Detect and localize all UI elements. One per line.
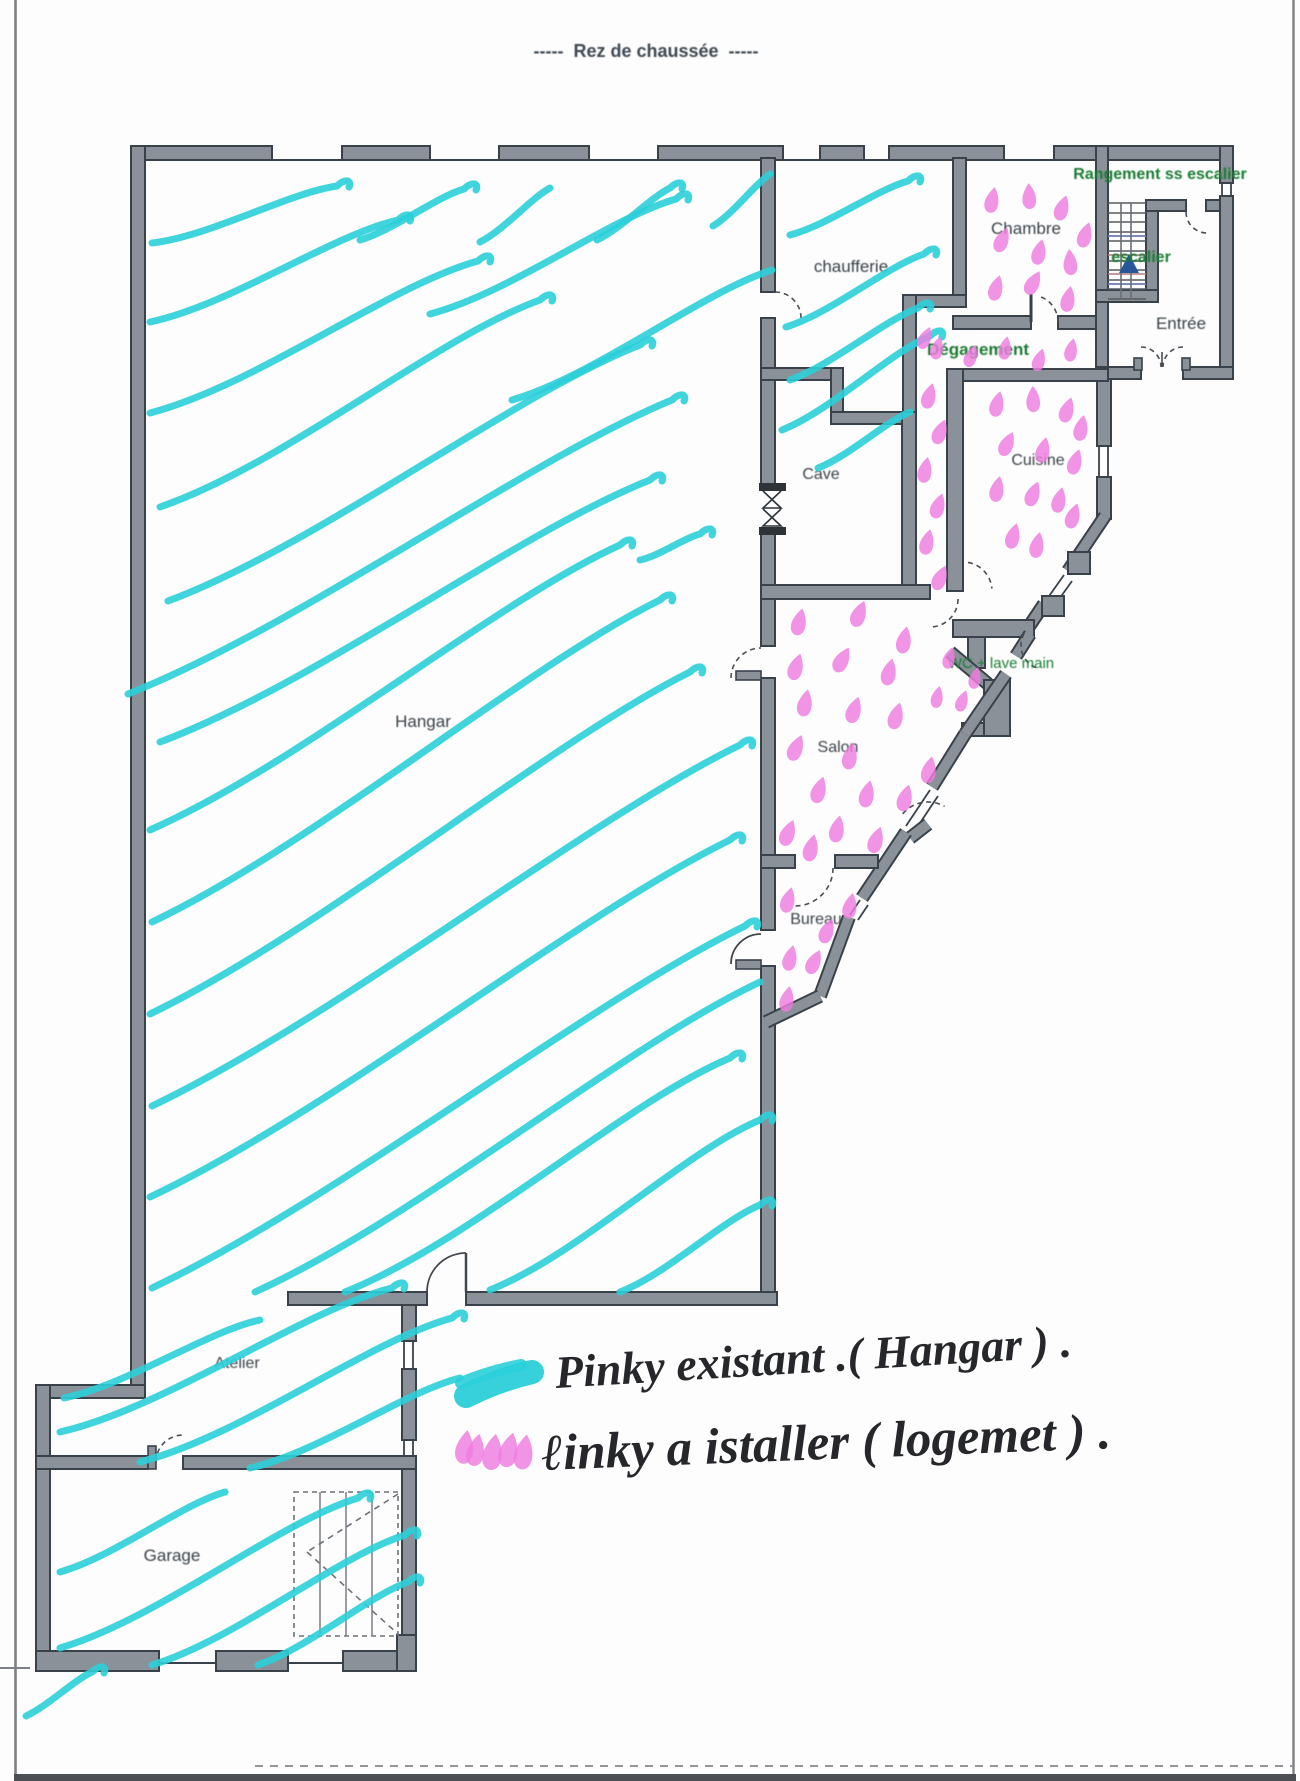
svg-text:----- Rez de chaussée -----: ----- Rez de chaussée -----: [533, 41, 758, 61]
svg-text:Garage: Garage: [144, 1546, 201, 1565]
svg-text:Bureau: Bureau: [790, 911, 842, 928]
svg-text:Hangar: Hangar: [395, 712, 451, 731]
svg-text:chaufferie: chaufferie: [814, 257, 888, 276]
svg-text:escalier: escalier: [1111, 249, 1171, 266]
svg-text:WC + lave main: WC + lave main: [948, 655, 1054, 672]
svg-text:Rangement ss escalier: Rangement ss escalier: [1073, 166, 1246, 183]
svg-text:Entrée: Entrée: [1156, 314, 1206, 333]
